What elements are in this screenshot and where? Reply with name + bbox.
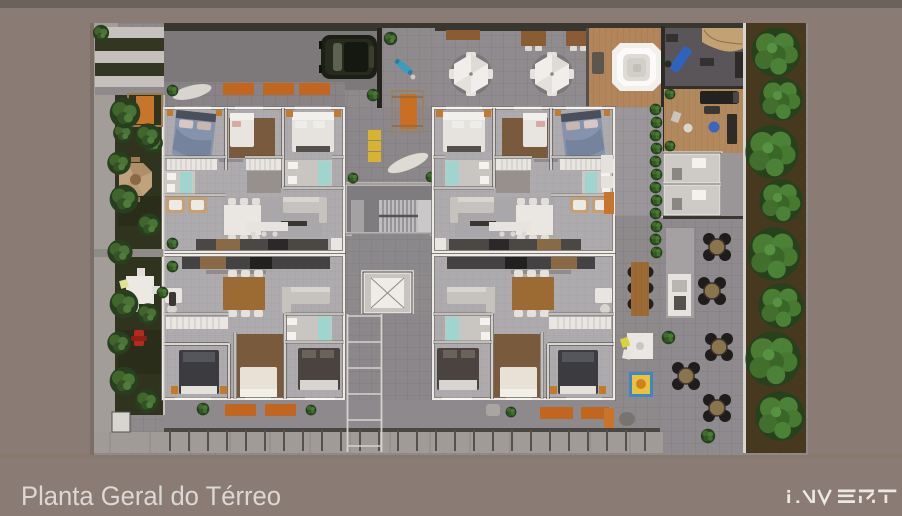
svg-text:Planta Geral do Térreo: Planta Geral do Térreo	[21, 481, 281, 511]
